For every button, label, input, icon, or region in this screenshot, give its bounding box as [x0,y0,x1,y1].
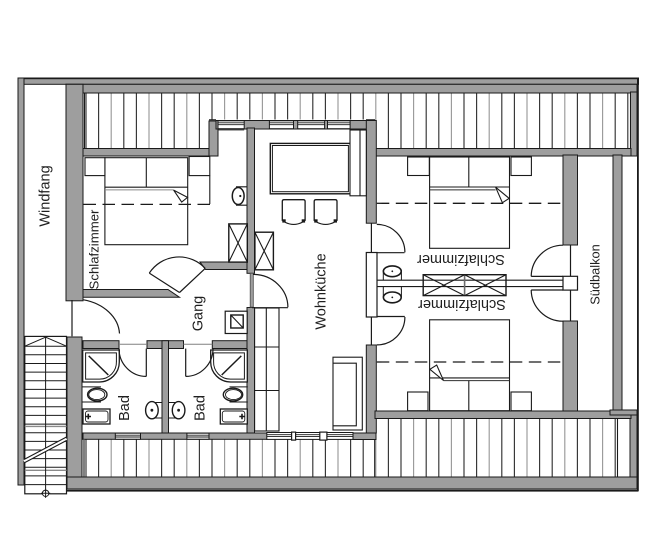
svg-text:Schlafzimmer: Schlafzimmer [417,251,505,267]
svg-text:Windfang: Windfang [38,165,54,226]
svg-text:Südbalkon: Südbalkon [588,244,603,304]
svg-text:Gang: Gang [191,296,207,331]
svg-text:Schlafzimmer: Schlafzimmer [418,296,506,312]
svg-text:Bad: Bad [117,395,133,421]
svg-text:Bad: Bad [193,395,209,421]
svg-text:Wohnküche: Wohnküche [314,253,330,329]
svg-text:Schlafzimmer: Schlafzimmer [87,209,102,289]
